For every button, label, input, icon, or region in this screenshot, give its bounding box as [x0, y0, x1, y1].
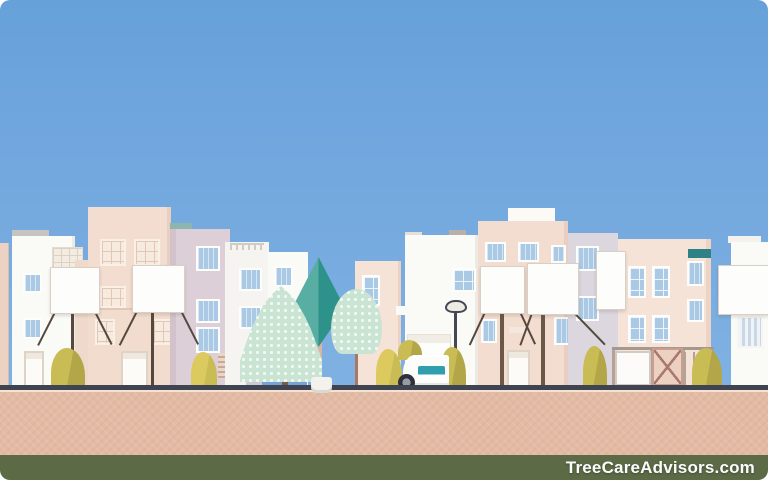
billboard-tree-trunk	[541, 313, 545, 386]
door	[507, 350, 530, 388]
window	[196, 327, 220, 353]
building-white-right	[731, 242, 768, 388]
billboard-tree-canopy	[480, 266, 525, 314]
window	[274, 266, 293, 287]
window	[518, 242, 539, 262]
billboard-panel	[596, 251, 626, 310]
window	[687, 261, 704, 286]
window	[652, 266, 670, 298]
billboard-panel	[718, 265, 768, 315]
window	[687, 299, 704, 322]
window	[481, 319, 497, 343]
teal-roof-structure	[688, 249, 711, 258]
billboard-tree-canopy	[50, 267, 100, 314]
roof-parapet-box	[508, 208, 555, 222]
billboard-tree-canopy	[132, 265, 185, 313]
window	[485, 242, 506, 262]
window	[134, 239, 160, 266]
window	[628, 266, 646, 298]
window	[452, 268, 476, 292]
wall-box	[396, 306, 405, 315]
window	[628, 315, 646, 343]
window	[100, 286, 126, 308]
window	[239, 268, 262, 291]
tree-planter-pot	[311, 377, 332, 393]
window	[23, 318, 42, 339]
billboard-tree-trunk	[500, 312, 504, 386]
window	[100, 239, 126, 266]
road	[0, 392, 768, 455]
building-edge-sliver	[0, 243, 9, 388]
window	[196, 246, 220, 271]
window	[737, 316, 763, 348]
door	[121, 351, 148, 388]
city-street-illustration: TreeCareAdvisors.com	[0, 0, 768, 480]
gate-white	[615, 351, 651, 386]
street-lamp-head	[445, 300, 467, 313]
watermark-bar: TreeCareAdvisors.com	[0, 455, 768, 480]
billboard-tree-trunk	[151, 311, 154, 388]
van-window	[418, 366, 445, 380]
window	[551, 245, 566, 263]
roof-railing	[230, 243, 264, 250]
window	[23, 273, 42, 293]
gate-diagonal-braced	[652, 348, 683, 386]
watermark-text: TreeCareAdvisors.com	[566, 458, 755, 478]
door	[24, 351, 44, 388]
window	[652, 315, 670, 343]
window	[152, 319, 172, 345]
window	[196, 299, 220, 323]
billboard-tree-canopy	[527, 263, 579, 315]
